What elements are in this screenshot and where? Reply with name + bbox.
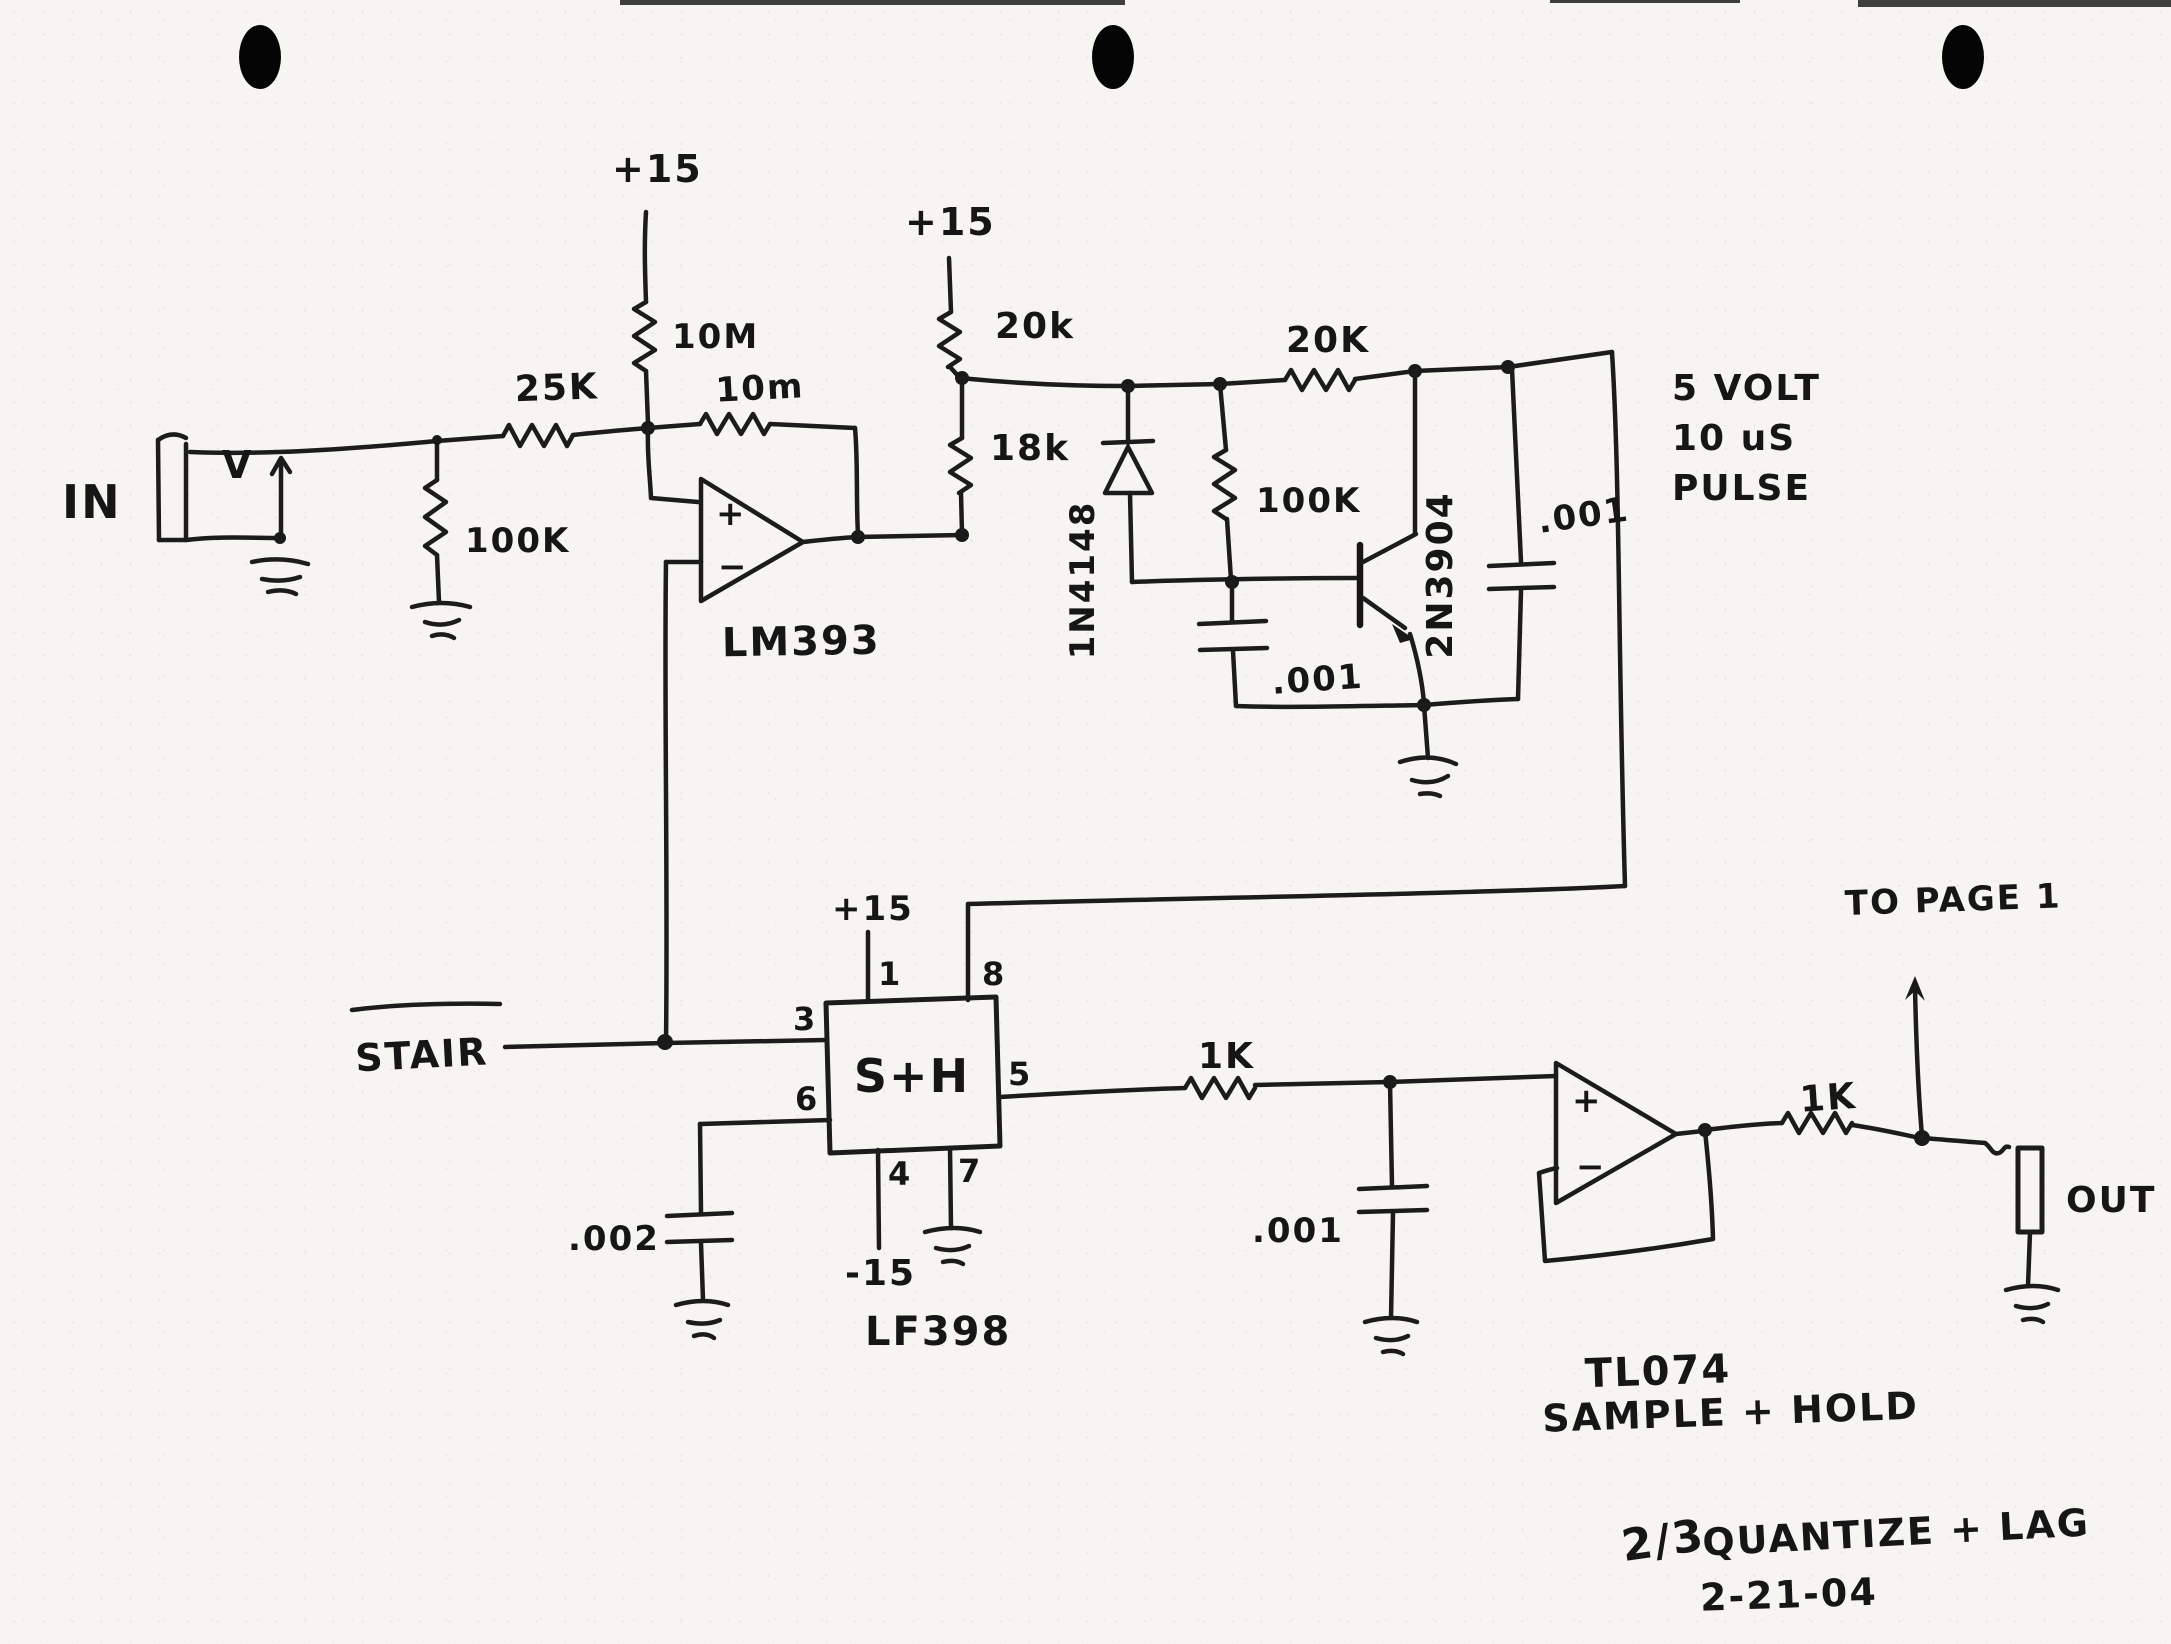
resistor-20k-top: [939, 312, 960, 378]
supply-pulse-label: +15: [905, 200, 996, 244]
output-jack: [1922, 1138, 2058, 1322]
resistor-25k-label: 25K: [514, 366, 599, 410]
tl074-minus-mark: −: [1576, 1147, 1607, 1187]
supply-wire-pulse: [949, 258, 951, 312]
lm393-minus-mark: −: [718, 547, 749, 587]
tl074-label: TL074: [1584, 1346, 1732, 1397]
diode-1n4148: [1103, 386, 1153, 582]
resistor-18k-label: 18k: [990, 428, 1070, 469]
date-note: 2-21-04: [1699, 1570, 1878, 1620]
capacitor-002-label: .002: [568, 1219, 660, 1259]
sh-pin1-label: 1: [878, 955, 902, 993]
ground-symbol-input: [252, 559, 308, 594]
sh-output-wire: [1000, 1075, 1556, 1098]
tl074-opamp: [1539, 1063, 1713, 1261]
sh-pin4-supply: [878, 1150, 879, 1248]
lm393-label: LM393: [721, 618, 881, 667]
transistor-2n3904-label: 2N3904: [1420, 491, 1461, 658]
resistor-25k: [503, 425, 648, 446]
sh-pin4-label: 4: [888, 1155, 912, 1193]
pulse-note-line3: PULSE: [1672, 468, 1811, 509]
resistor-100k-input: [425, 435, 446, 602]
pulse-note-line1: 5 VOLT: [1672, 368, 1821, 409]
sh-pin3-label: 3: [793, 1000, 817, 1038]
sh-pin6-hold-cap: [667, 1120, 830, 1338]
resistor-100k-base: [1214, 384, 1235, 580]
base-wire: [1132, 575, 1358, 589]
ground-symbol-emitter: [1400, 705, 1456, 796]
scan-edge-artifacts: [620, 0, 2171, 7]
punch-holes: [239, 25, 1984, 89]
lm393-plus-mark: +: [716, 494, 747, 534]
punch-hole: [1942, 25, 1984, 89]
resistor-1k-out-label: 1K: [1198, 1036, 1255, 1077]
to-page-arrow: [1905, 976, 1925, 1136]
resistor-100k-input-label: 100K: [465, 521, 570, 561]
sh-pin5-label: 5: [1008, 1055, 1032, 1093]
resistor-10m-pullup: [634, 302, 655, 424]
supply-left-label: +15: [612, 147, 703, 191]
input-signal-mark: V: [222, 443, 253, 487]
resistor-18k: [950, 371, 971, 533]
sh-supply-neg-label: -15: [845, 1253, 916, 1294]
ground-symbol-100k: [412, 603, 470, 638]
sh-pin8-label: 8: [982, 955, 1006, 993]
lf398-label: LF398: [865, 1309, 1011, 1355]
scanned-schematic-page: IN V 25K 100K +15 10M 10m + − LM393 +15 …: [0, 0, 2171, 1644]
punch-hole: [239, 25, 281, 89]
schematic-drawing: IN V 25K 100K +15 10M 10m + − LM393 +15 …: [0, 0, 2171, 1644]
diode-1n4148-label: 1N4148: [1063, 501, 1103, 660]
title-note: QUANTIZE + LAG: [1701, 1500, 2091, 1564]
capacitor-001-filter-label: .001: [1252, 1211, 1344, 1251]
resistor-20k-collector-label: 20K: [1286, 320, 1370, 361]
pulse-note-line2: 10 uS: [1672, 418, 1796, 459]
stair-label: STAIR: [354, 1029, 489, 1080]
resistor-1k-final-label: 1K: [1799, 1076, 1859, 1121]
input-jack-label: IN: [62, 475, 122, 529]
out-jack-label: OUT: [2066, 1180, 2156, 1221]
sh-pin7-label: 7: [958, 1152, 982, 1190]
punch-hole: [1092, 25, 1134, 89]
sh-pin6-label: 6: [795, 1080, 819, 1118]
sh-block-label: S+H: [854, 1049, 970, 1103]
to-page-label: TO PAGE 1: [1844, 876, 2062, 924]
resistor-20k-top-label: 20k: [995, 306, 1075, 347]
page-fraction: 2/3: [1618, 1510, 1708, 1572]
resistor-10m-pullup-label: 10M: [672, 317, 759, 357]
resistor-100k-base-label: 100K: [1256, 481, 1361, 521]
capacitor-001-filter: [1359, 1082, 1427, 1354]
sh-supply-pos-label: +15: [832, 889, 914, 929]
resistor-10m-feedback-label: 10m: [715, 366, 806, 411]
tl074-plus-mark: +: [1572, 1081, 1603, 1121]
resistor-10m-feedback: [648, 414, 858, 535]
supply-wire-left: [645, 212, 646, 302]
lm393-comparator: [648, 430, 969, 1042]
capacitor-001-base-label: .001: [1270, 657, 1364, 703]
